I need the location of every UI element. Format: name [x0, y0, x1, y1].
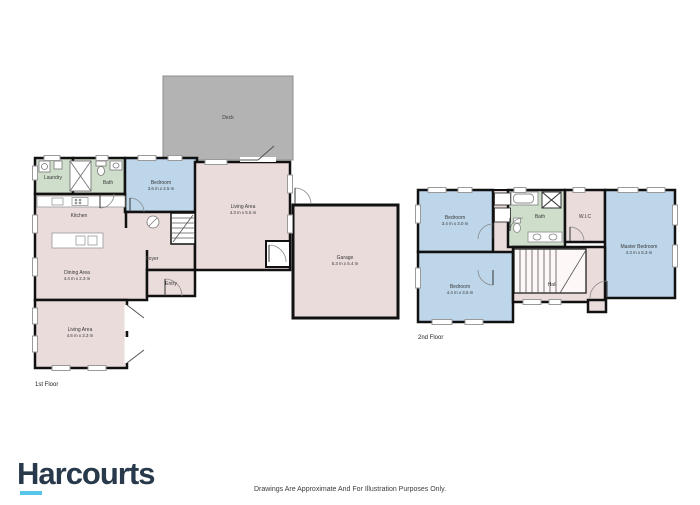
first-floor-label: 1st Floor — [35, 382, 58, 388]
stairs-first-floor — [171, 213, 195, 244]
deck-room: Deck — [163, 76, 293, 160]
wic-label: W.I.C — [579, 214, 592, 220]
laundry-label: Laundry — [44, 175, 63, 181]
bathtub-icon — [511, 192, 538, 205]
bedroom-b-dims: 4.4 m x 3.5 m — [447, 290, 474, 295]
living-upper-dims: 4.3 m x 5.5 m — [230, 210, 257, 215]
garage-dims: 5.3 m x 5.4 m — [332, 261, 359, 266]
closet-vestibule — [266, 241, 290, 267]
floorplan-drawing: Deck — [0, 0, 700, 500]
entry-label: Entry — [165, 281, 177, 287]
bath-second-label: Bath — [535, 214, 546, 220]
shower-second-icon — [542, 192, 561, 208]
deck-label: Deck — [222, 115, 234, 121]
foyer-fixture-icon — [147, 216, 159, 228]
kitchen-label: Kitchen — [71, 213, 88, 219]
floorplan-page: Deck — [0, 0, 700, 500]
master-bedroom-dims: 4.3 m x 5.3 m — [626, 250, 653, 255]
living-lower-dims: 4.6 m x 3.3 m — [67, 333, 94, 338]
landing-step — [588, 300, 606, 312]
vanity-icon — [528, 232, 562, 242]
bath-label: Bath — [103, 180, 114, 186]
second-floor-label: 2nd Floor — [418, 335, 443, 341]
foyer-label: Foyer — [146, 256, 159, 262]
bedroom-a-dims: 3.4 m x 3.0 m — [442, 221, 469, 226]
second-floor-plan: Bedroom 3.4 m x 3.0 m Bedroom 4.4 m x 3.… — [416, 188, 678, 342]
bedroom-dims: 3.6 m x 2.5 m — [148, 186, 175, 191]
hall-label: Hall — [548, 282, 557, 288]
toilet-second-icon — [514, 218, 521, 233]
dining-dims: 4.4 m x 2.3 m — [64, 276, 91, 281]
sink-icon — [110, 161, 122, 170]
kitchen-island — [52, 233, 103, 248]
shower-icon — [70, 161, 91, 191]
first-floor-plan: Deck — [33, 76, 399, 388]
disclaimer-text: Drawings Are Approximate And For Illustr… — [0, 486, 700, 493]
